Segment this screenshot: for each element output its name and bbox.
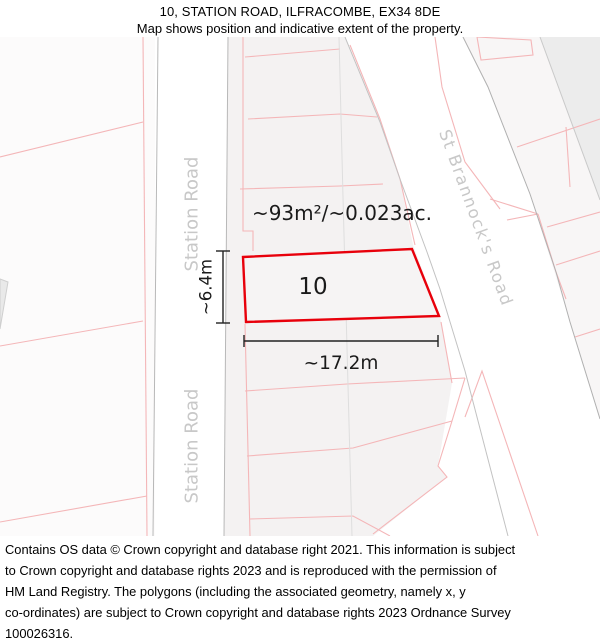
property-map: Station Road Station Road St Brannock's …: [0, 37, 600, 536]
property-10-outline: [243, 249, 439, 322]
property-number-label: 10: [298, 274, 327, 300]
map-subtitle: Map shows position and indicative extent…: [0, 21, 600, 38]
footer-line: co-ordinates) are subject to Crown copyr…: [5, 602, 594, 623]
address-title: 10, STATION ROAD, ILFRACOMBE, EX34 8DE: [0, 4, 600, 21]
footer-line: to Crown copyright and database rights 2…: [5, 560, 594, 581]
footer-line: HM Land Registry. The polygons (includin…: [5, 581, 594, 602]
width-dimension-label: ~17.2m: [304, 353, 379, 374]
footer-line: 100026316.: [5, 623, 594, 644]
page-header: 10, STATION ROAD, ILFRACOMBE, EX34 8DE M…: [0, 0, 600, 37]
footer-line: Contains OS data © Crown copyright and d…: [5, 539, 594, 560]
station-road-label-upper: Station Road: [182, 157, 203, 272]
height-dimension-label: ~6.4m: [197, 259, 216, 315]
copyright-footer: Contains OS data © Crown copyright and d…: [0, 536, 600, 644]
map-svg: Station Road Station Road St Brannock's …: [0, 37, 600, 536]
west-parcels-fill: [0, 37, 155, 536]
property-area-label: ~93m²/~0.023ac.: [252, 201, 432, 225]
station-road-label-lower: Station Road: [182, 389, 203, 504]
